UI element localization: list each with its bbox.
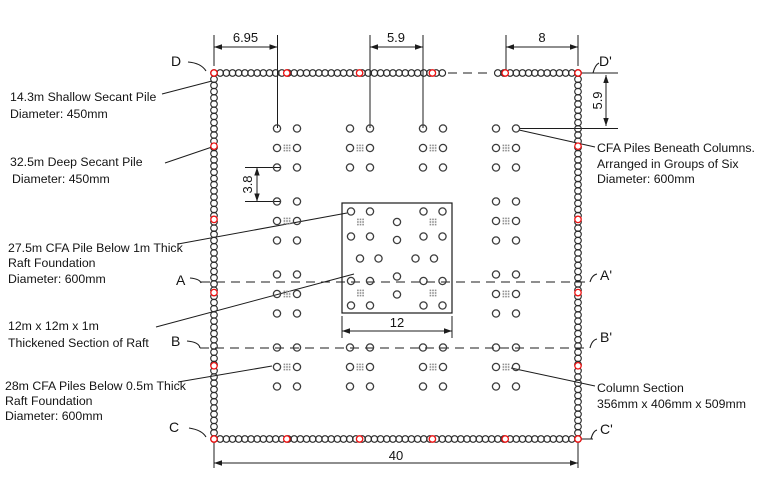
annotation-line: 356mm x 406mm x 509mm (597, 397, 746, 411)
cfa-pile (393, 291, 400, 298)
cfa-pile (293, 144, 300, 151)
cfa-pile (439, 302, 446, 309)
cfa-pile (375, 255, 382, 262)
section-label-a-prime: A' (600, 267, 612, 283)
cfa-pile (492, 144, 499, 151)
annotation-line: 28m CFA Piles Below 0.5m Thick (5, 379, 187, 393)
secant-pile (211, 225, 218, 232)
dimension-arrowhead (342, 328, 350, 333)
cfa-pile (439, 208, 446, 215)
cfa-pile (293, 198, 300, 205)
secant-pile (211, 188, 218, 195)
secant-pile (575, 405, 582, 412)
deep-secant-pile-marker (211, 216, 217, 222)
cfa-pile (512, 271, 519, 278)
secant-pile (211, 355, 218, 362)
cfa-pile (512, 164, 519, 171)
cfa-pile (492, 290, 499, 297)
secant-pile (211, 181, 218, 188)
secant-pile (211, 88, 218, 95)
cfa-pile (347, 302, 354, 309)
secant-pile (575, 194, 582, 201)
secant-pile (211, 194, 218, 201)
secant-pile (211, 411, 218, 418)
secant-pile (575, 88, 582, 95)
secant-pile (575, 392, 582, 399)
secant-pile (575, 76, 582, 83)
leader-cfa-thin-raft (178, 366, 272, 382)
annotation-deep-secant: 32.5m Deep Secant Pile Diameter: 450mm (10, 155, 143, 186)
cfa-pile (492, 310, 499, 317)
section-hook-d (188, 62, 206, 71)
cfa-pile (492, 198, 499, 205)
secant-pile (575, 200, 582, 207)
deep-secant-pile-marker (575, 289, 581, 295)
annotation-line: Diameter: 600mm (5, 409, 103, 423)
deep-secant-pile-marker (502, 436, 508, 442)
cfa-pile (492, 271, 499, 278)
leader-column-section (511, 368, 595, 386)
cfa-pile (366, 363, 373, 370)
section-hook-c (189, 428, 206, 437)
cfa-pile (346, 363, 353, 370)
deep-secant-pile-marker (211, 289, 217, 295)
dim-top-left-value: 6.95 (233, 30, 258, 45)
secant-pile (211, 231, 218, 238)
column-marker (503, 218, 510, 225)
secant-pile (575, 262, 582, 269)
dimension-arrowhead (370, 44, 378, 49)
secant-pile (211, 206, 218, 213)
dim-pile-spacing-value: 3.8 (240, 175, 255, 193)
column-marker (357, 290, 364, 297)
dimension-arrowhead (270, 44, 278, 49)
secant-pile (575, 355, 582, 362)
secant-pile (211, 175, 218, 182)
column-marker (503, 364, 510, 371)
secant-pile (575, 150, 582, 157)
secant-pile (575, 324, 582, 331)
section-label-b-prime: B' (600, 329, 612, 345)
annotation-line: 32.5m Deep Secant Pile (10, 155, 143, 169)
secant-pile (575, 336, 582, 343)
secant-pile (575, 206, 582, 213)
cfa-pile (393, 218, 400, 225)
cfa-pile (366, 208, 373, 215)
cfa-pile (273, 310, 280, 317)
dimension-arrowhead (214, 44, 222, 49)
section-lines (187, 62, 618, 439)
dimension-arrowhead (603, 118, 608, 126)
secant-pile (211, 95, 218, 102)
secant-pile (575, 169, 582, 176)
dimension-arrowhead (506, 44, 514, 49)
cfa-pile (293, 383, 300, 390)
foundation-plan-drawing: 6.95 5.9 8 5.9 3.8 12 40 D D' A A' B B' … (0, 0, 767, 480)
cfa-pile (420, 302, 427, 309)
dimension-arrowhead (254, 168, 259, 176)
cfa-pile (366, 383, 373, 390)
cfa-pile (439, 277, 446, 284)
column-marker (284, 364, 291, 371)
cfa-pile (346, 125, 353, 132)
cfa-pile (393, 236, 400, 243)
cfa-pile (419, 383, 426, 390)
deep-secant-pile-marker (575, 143, 581, 149)
cfa-pile (366, 302, 373, 309)
annotation-line: Arranged in Groups of Six (597, 157, 739, 171)
leader-shallow-secant (162, 81, 212, 94)
secant-pile (575, 181, 582, 188)
section-hook-a-prime (590, 274, 597, 282)
secant-pile (575, 231, 582, 238)
secant-pile (211, 250, 218, 257)
secant-pile (211, 243, 218, 250)
annotation-line: Thickened Section of Raft (8, 336, 149, 350)
cfa-pile (512, 237, 519, 244)
dim-thickened-width-value: 12 (390, 315, 404, 330)
cfa-pile (273, 144, 280, 151)
secant-pile (575, 101, 582, 108)
column-marker (503, 291, 510, 298)
dimension-lines (214, 35, 618, 468)
column-marker (357, 219, 364, 226)
secant-pile (575, 398, 582, 405)
annotation-line: 27.5m CFA Pile Below 1m Thick (8, 241, 184, 255)
dimension-arrowhead (570, 460, 578, 465)
secant-pile (211, 107, 218, 114)
secant-pile (575, 119, 582, 126)
secant-pile (211, 380, 218, 387)
section-hook-b (187, 341, 200, 348)
secant-pile (211, 268, 218, 275)
column-marker (284, 145, 291, 152)
leader-cfa-columns (519, 130, 595, 147)
annotation-thickened-raft: 12m x 12m x 1m Thickened Section of Raft (8, 319, 149, 350)
secant-pile (575, 349, 582, 356)
cfa-pile (492, 217, 499, 224)
dimension-arrowhead (415, 44, 423, 49)
cfa-pile (366, 233, 373, 240)
column-marker (430, 290, 437, 297)
secant-pile (211, 169, 218, 176)
cfa-pile (419, 363, 426, 370)
secant-pile (211, 82, 218, 89)
dim-overall-width-value: 40 (389, 448, 403, 463)
dim-top-middle-value: 5.9 (387, 30, 405, 45)
cfa-pile (419, 144, 426, 151)
annotation-line: CFA Piles Beneath Columns. (597, 141, 755, 155)
secant-pile (211, 386, 218, 393)
cfa-pile (273, 383, 280, 390)
cfa-pile (273, 271, 280, 278)
secant-pile (211, 417, 218, 424)
cfa-pile (492, 383, 499, 390)
secant-pile (211, 324, 218, 331)
secant-pile (211, 349, 218, 356)
secant-pile (211, 336, 218, 343)
cfa-pile (439, 125, 446, 132)
cfa-pile (293, 290, 300, 297)
section-label-d: D (171, 53, 181, 69)
cfa-pile (512, 125, 519, 132)
deep-secant-pile-marker (211, 436, 217, 442)
secant-pile (211, 126, 218, 133)
cfa-pile (346, 383, 353, 390)
secant-pile (575, 250, 582, 257)
column-marker (284, 218, 291, 225)
cfa-pile (419, 164, 426, 171)
secant-pile (575, 175, 582, 182)
dimension-arrowhead (603, 75, 608, 83)
dimension-arrowhead (444, 328, 452, 333)
secant-pile (211, 423, 218, 430)
deep-secant-pile-marker (211, 363, 217, 369)
secant-pile (211, 101, 218, 108)
secant-pile (575, 113, 582, 120)
cfa-pile (512, 217, 519, 224)
deep-secant-pile-marker (284, 436, 290, 442)
dimension-arrowhead (214, 460, 222, 465)
deep-secant-pile-marker (429, 70, 435, 76)
cfa-pile (366, 144, 373, 151)
secant-pile (211, 374, 218, 381)
cfa-pile (512, 198, 519, 205)
annotation-column-section: Column Section 356mm x 406mm x 509mm (597, 381, 746, 411)
secant-pile (575, 386, 582, 393)
annotation-cfa-columns: CFA Piles Beneath Columns. Arranged in G… (597, 141, 755, 186)
cfa-pile (293, 125, 300, 132)
cfa-pile (439, 383, 446, 390)
column-marker (284, 291, 291, 298)
secant-pile (211, 113, 218, 120)
secant-pile (211, 405, 218, 412)
annotation-cfa-thin-raft: 28m CFA Piles Below 0.5m Thick Raft Foun… (5, 379, 187, 423)
annotation-line: Diameter: 600mm (597, 172, 695, 186)
column-marker (503, 145, 510, 152)
annotation-line: Raft Foundation (8, 256, 96, 270)
dimension-arrowhead (570, 44, 578, 49)
column-marker (430, 219, 437, 226)
cfa-pile (347, 233, 354, 240)
cfa-pile (293, 363, 300, 370)
annotation-shallow-secant: 14.3m Shallow Secant Pile Diameter: 450m… (10, 90, 156, 121)
dim-top-right-value: 8 (538, 30, 545, 45)
cfa-pile (439, 144, 446, 151)
annotation-line: 12m x 12m x 1m (8, 319, 99, 333)
cfa-pile (492, 237, 499, 244)
cfa-pile (347, 208, 354, 215)
deep-secant-pile-marker (502, 70, 508, 76)
column-marker (357, 145, 364, 152)
deep-secant-pile-marker (575, 363, 581, 369)
secant-pile (211, 274, 218, 281)
cfa-pile (273, 237, 280, 244)
cfa-pile (356, 255, 363, 262)
secant-pile (575, 312, 582, 319)
secant-pile (575, 243, 582, 250)
cfa-pile (439, 164, 446, 171)
secant-pile (211, 318, 218, 325)
cfa-pile (346, 144, 353, 151)
dimension-arrowhead (254, 194, 259, 202)
secant-pile (575, 417, 582, 424)
cfa-pile (512, 383, 519, 390)
secant-pile (575, 299, 582, 306)
cfa-pile (346, 164, 353, 171)
section-hook-b-prime (590, 339, 597, 348)
secant-pile (211, 299, 218, 306)
leader-lines (156, 81, 595, 386)
secant-pile (575, 157, 582, 164)
secant-pile-wall (211, 70, 582, 443)
secant-pile (211, 256, 218, 263)
annotation-line: Raft Foundation (5, 394, 93, 408)
secant-pile (211, 343, 218, 350)
secant-pile (575, 132, 582, 139)
deep-secant-pile-marker (575, 216, 581, 222)
cfa-pile (366, 277, 373, 284)
secant-pile (211, 398, 218, 405)
cfa-pile (512, 290, 519, 297)
secant-pile (211, 200, 218, 207)
deep-secant-pile-marker (356, 70, 362, 76)
section-hook-d-prime (578, 63, 618, 73)
secant-pile (211, 157, 218, 164)
secant-pile (575, 305, 582, 312)
secant-pile (575, 82, 582, 89)
secant-pile (211, 312, 218, 319)
section-label-d-prime: D' (599, 53, 612, 69)
cfa-pile (430, 255, 437, 262)
section-hook-a (190, 278, 201, 283)
cfa-pile (439, 363, 446, 370)
secant-pile (211, 150, 218, 157)
section-label-c: C (169, 419, 179, 435)
secant-pile (211, 132, 218, 139)
cfa-pile (273, 217, 280, 224)
secant-pile (575, 188, 582, 195)
cfa-pile (347, 277, 354, 284)
leader-deep-secant (165, 147, 212, 163)
annotation-line: Diameter: 450mm (10, 107, 108, 121)
cfa-pile (492, 125, 499, 132)
cfa-pile (492, 164, 499, 171)
secant-pile (575, 318, 582, 325)
secant-pile (211, 262, 218, 269)
cfa-pile (420, 208, 427, 215)
deep-secant-pile-marker (575, 436, 581, 442)
secant-pile (575, 237, 582, 244)
cfa-pile (293, 217, 300, 224)
deep-secant-pile-marker (211, 70, 217, 76)
secant-pile (575, 225, 582, 232)
secant-pile (211, 392, 218, 399)
secant-pile (575, 95, 582, 102)
secant-pile (575, 423, 582, 430)
annotation-line: Diameter: 600mm (8, 272, 106, 286)
cfa-pile (512, 310, 519, 317)
dimension-arrowheads (214, 44, 609, 465)
secant-pile (575, 330, 582, 337)
secant-pile (211, 76, 218, 83)
cfa-pile (273, 363, 280, 370)
cfa-pile-groups (273, 125, 519, 390)
cfa-pile (492, 363, 499, 370)
secant-pile (211, 119, 218, 126)
deep-secant-pile-marker (211, 143, 217, 149)
column-marker (430, 145, 437, 152)
leader-cfa-thick-raft (178, 213, 347, 244)
secant-pile (211, 237, 218, 244)
secant-pile (211, 429, 218, 436)
secant-pile (575, 274, 582, 281)
annotation-cfa-thick-raft: 27.5m CFA Pile Below 1m Thick Raft Found… (8, 241, 184, 286)
secant-pile (575, 374, 582, 381)
secant-pile (575, 411, 582, 418)
annotation-line: Diameter: 450mm (12, 172, 110, 186)
cfa-pile (293, 164, 300, 171)
cfa-pile (439, 233, 446, 240)
annotation-line: Column Section (597, 381, 684, 395)
secant-pile (575, 163, 582, 170)
cfa-pile (412, 255, 419, 262)
cfa-pile (512, 144, 519, 151)
cfa-pile (366, 164, 373, 171)
deep-secant-pile-marker (575, 70, 581, 76)
secant-pile (575, 107, 582, 114)
cfa-pile (420, 233, 427, 240)
section-label-c-prime: C' (600, 421, 613, 437)
secant-pile (575, 429, 582, 436)
secant-pile (211, 281, 218, 288)
annotation-line: 14.3m Shallow Secant Pile (10, 90, 156, 104)
column-marker (430, 364, 437, 371)
foundation-plan-svg: 6.95 5.9 8 5.9 3.8 12 40 D D' A A' B B' … (0, 0, 767, 480)
section-label-b: B (171, 333, 180, 349)
secant-pile (575, 256, 582, 263)
cfa-pile (293, 310, 300, 317)
cfa-pile (293, 237, 300, 244)
cfa-pile (420, 277, 427, 284)
cfa-pile (293, 271, 300, 278)
secant-pile (575, 268, 582, 275)
deep-secant-pile-marker (284, 70, 290, 76)
column-marker (357, 364, 364, 371)
cfa-pile (393, 273, 400, 280)
dim-right-side-value: 5.9 (590, 91, 605, 109)
secant-pile (211, 330, 218, 337)
deep-secant-pile-marker (356, 436, 362, 442)
section-label-a: A (176, 272, 186, 288)
secant-pile (211, 163, 218, 170)
deep-secant-pile-marker (429, 436, 435, 442)
